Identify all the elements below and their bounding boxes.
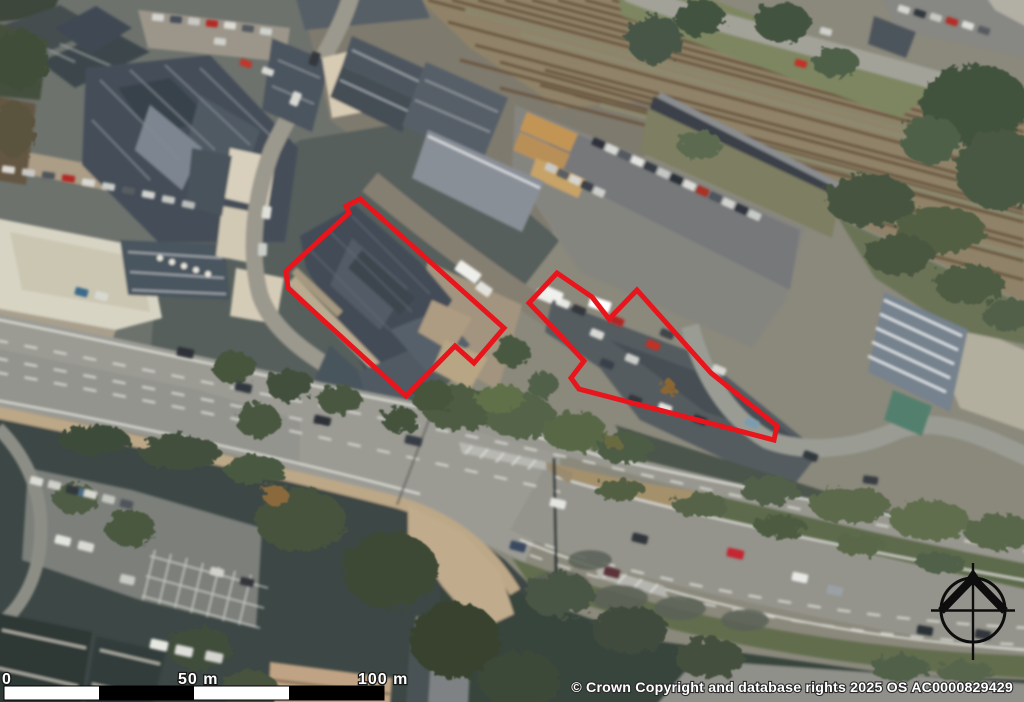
svg-text:0: 0 [2, 671, 12, 688]
svg-text:© Crown Copyright and database: © Crown Copyright and database rights 20… [571, 680, 1013, 696]
svg-text:100 m: 100 m [358, 671, 408, 688]
svg-text:50 m: 50 m [178, 671, 218, 688]
